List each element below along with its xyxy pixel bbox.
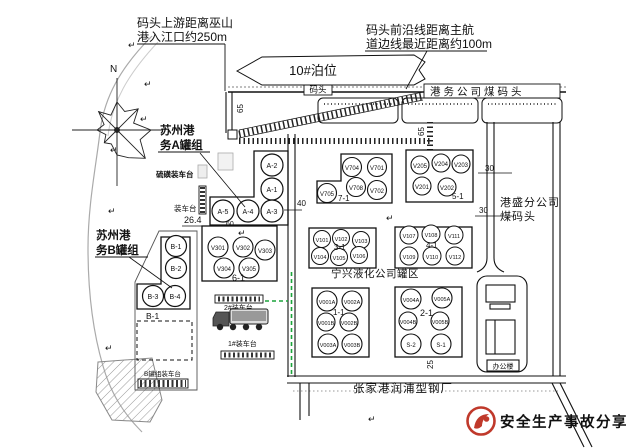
- tank-label: V108: [425, 233, 438, 239]
- tank-label: V111: [448, 234, 460, 240]
- tank-label: V104: [314, 255, 327, 261]
- tank-label: V105: [333, 256, 346, 262]
- group-label: 3-1: [334, 243, 346, 252]
- note-channel-line2: 道边线最近距离约100m: [366, 36, 492, 51]
- tank-label: B-3: [148, 294, 159, 301]
- note-upstream-line2: 港入江口约250m: [137, 29, 227, 44]
- tank-label: V005B: [432, 320, 449, 326]
- tank-group-a: A-2 A-1 A-5 A-4 A-3: [198, 151, 288, 225]
- dim-label: 60: [226, 221, 234, 228]
- area-ningxing-label: 宁兴液化公司罐区: [331, 267, 419, 280]
- tank-label: A-5: [218, 209, 229, 216]
- dim-label: 25: [426, 360, 435, 369]
- gangsheng-line2: 煤码头: [500, 210, 536, 223]
- return-mark: ↵: [238, 228, 246, 238]
- tank-label: V702: [370, 189, 385, 195]
- group-label: 7-1: [338, 194, 350, 203]
- tank-label: V004A: [403, 298, 420, 304]
- tank-group-3-1: V101 V102 V103 V104 V105 V106 3-1: [309, 228, 376, 268]
- return-mark: ↵: [144, 79, 152, 89]
- tank-label: V004B: [400, 320, 417, 326]
- tank-label: V103: [355, 239, 368, 245]
- tank-label: V304: [217, 267, 232, 273]
- platform-label: 硫磺装车台: [156, 169, 194, 179]
- tank-label: V303: [258, 249, 273, 255]
- tank-label: V106: [353, 254, 366, 260]
- return-mark: ↵: [105, 343, 113, 353]
- tank-label: A-4: [243, 209, 254, 216]
- tank-label: A-1: [267, 187, 278, 194]
- tank-label: V002A: [344, 300, 361, 306]
- group-a-title-line2: 务A罐组: [160, 138, 203, 152]
- north-label: N: [110, 64, 117, 75]
- tank-label: A-3: [267, 209, 278, 216]
- building-outline: [218, 153, 233, 170]
- tank-label: V705: [320, 192, 335, 198]
- tank-group-5-1: V205 V204 V203 V201 V202 5-1: [406, 150, 473, 202]
- berth-label: 10#泊位: [289, 63, 337, 78]
- office-label: 办公楼: [493, 362, 514, 371]
- tank-group-2-1: V004A V005A V004B V005B S-2 S-1 2-1: [395, 287, 462, 357]
- return-mark: ↵: [368, 414, 376, 424]
- dim-label: 26.4: [184, 215, 202, 225]
- tank-label: V204: [434, 162, 449, 168]
- tank-group-1-1: V001A V002A V001B V002B V003A V003B 1-1: [312, 288, 369, 357]
- tank-label: V107: [403, 234, 416, 240]
- return-mark: ↵: [386, 213, 394, 223]
- tank-label: V301: [211, 246, 226, 252]
- group-label: 4-1: [426, 241, 438, 250]
- tank-label: V101: [316, 238, 329, 244]
- tank-label: S-2: [406, 343, 416, 349]
- dim-label: 30: [485, 164, 494, 173]
- ship-berth: 10#泊位: [237, 55, 425, 85]
- tank-label: V201: [415, 185, 430, 191]
- wharf-area: 码头 港务公司煤码头: [228, 83, 566, 123]
- tank-label: V110: [426, 255, 438, 261]
- note-channel-line1: 码头前沿线距离主航: [366, 22, 474, 37]
- footer-brand: 安全生产事故分享: [468, 408, 626, 435]
- coal-dock-label: 港务公司煤码头: [430, 85, 525, 98]
- tank-label: V205: [413, 164, 428, 170]
- group-b-title-line1: 苏州港: [96, 228, 131, 242]
- dim-label: 65: [417, 127, 426, 136]
- group-label: 5-1: [452, 192, 464, 201]
- tank-label: S-1: [436, 343, 446, 349]
- tank-label: V302: [236, 246, 251, 252]
- tank-label: V708: [349, 186, 364, 192]
- tank-label: V203: [454, 163, 469, 169]
- tank-label: V109: [403, 255, 416, 261]
- site-plan-drawing: N 码头 港务公司煤码头 10#泊位: [0, 0, 626, 448]
- building-outline: [198, 165, 207, 178]
- office-building: 办公楼: [477, 276, 527, 372]
- brand-label: 安全生产事故分享: [500, 413, 626, 431]
- group-b-title-line2: 务B罐组: [96, 243, 139, 257]
- tank-label: A-2: [267, 163, 278, 170]
- brand-logo-icon: [484, 416, 490, 422]
- return-mark: ↵: [140, 114, 148, 124]
- tank-label: V701: [370, 166, 385, 172]
- group-label: 2-1: [420, 308, 433, 318]
- truck: [213, 309, 268, 330]
- return-mark: ↵: [110, 145, 118, 155]
- tank-label: V003B: [344, 343, 361, 349]
- note-upstream-line1: 码头上游距离巫山: [137, 15, 233, 30]
- dim-label: 65: [236, 104, 245, 113]
- tank-label: V704: [345, 166, 360, 172]
- return-mark: ↵: [128, 40, 136, 50]
- tank-label: V003A: [320, 343, 337, 349]
- group-label: 1-1: [333, 308, 345, 317]
- dim-label: 40: [297, 199, 306, 208]
- group-label: 6-1: [232, 273, 245, 283]
- tank-group-7-1: V704 V701 V708 V702 V705 7-1: [317, 154, 392, 203]
- dock-label: 码头: [309, 85, 327, 95]
- platform-label: 装车台: [174, 203, 197, 213]
- tank-label: B-1: [171, 244, 182, 251]
- site-plan-page: N 码头 港务公司煤码头 10#泊位: [0, 0, 626, 448]
- platform-label: 1#装车台: [228, 339, 257, 348]
- tank-label: V005A: [434, 297, 451, 303]
- return-mark: ↵: [108, 206, 116, 216]
- gangsheng-line1: 港盛分公司: [500, 195, 560, 209]
- tank-label: V001A: [319, 300, 336, 306]
- tank-label: V001B: [318, 321, 335, 327]
- area-label: B-1: [146, 311, 160, 321]
- tank-label: V112: [449, 255, 461, 261]
- area-steel-plant-label: 张家港润浦型钢厂: [353, 381, 453, 395]
- tank-label: V002B: [341, 321, 358, 327]
- tank-group-4-1: V107 V108 V111 V109 V110 V112 4-1: [395, 225, 472, 268]
- dim-label: 30: [479, 206, 488, 215]
- tank-label: B-4: [170, 294, 181, 301]
- group-a-title-line1: 苏州港: [160, 123, 195, 137]
- platform-label: B罐组装车台: [144, 369, 181, 378]
- tank-label: B-2: [171, 266, 182, 273]
